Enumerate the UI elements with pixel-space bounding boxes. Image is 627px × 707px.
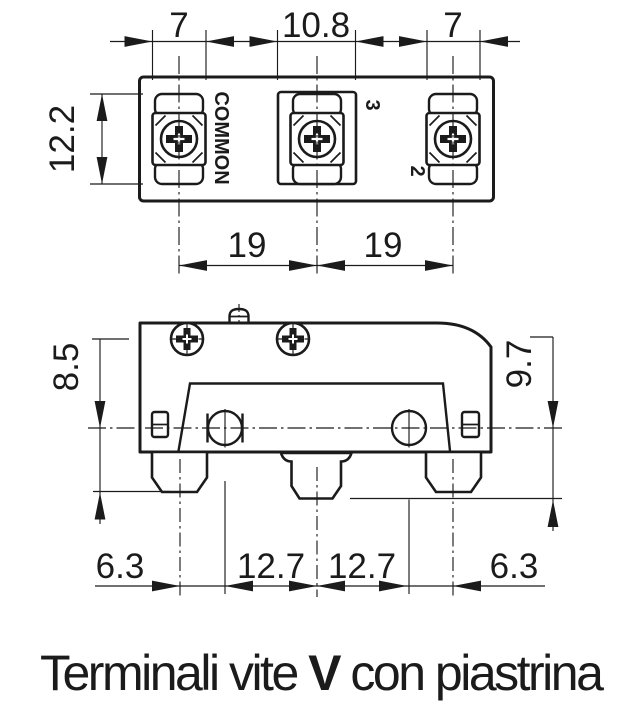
dimension-bottom-chain: 6.3 12.7 12.7 6.3: [95, 547, 545, 591]
extension-line: [90, 94, 143, 184]
cover-screw-right: [277, 323, 309, 355]
label-terminal-3: 3: [361, 99, 383, 110]
dim-label-off-l: 6.3: [96, 547, 145, 586]
dim-label-off-r: 6.3: [490, 547, 539, 586]
dim-label-height: 12.2: [43, 105, 82, 173]
dim-label-pitch-r: 19: [364, 226, 403, 265]
dim-label-h-left: 8.5: [47, 343, 86, 392]
dimension-top-widths: 7 10.8 7: [110, 6, 520, 80]
dim-label-p-l: 12.7: [237, 547, 305, 586]
technical-drawing: COMMON 3 2 7 10.8 7 12.2 19 19: [0, 0, 627, 707]
dim-label-w-right: 7: [443, 6, 462, 45]
label-terminal-2: 2: [406, 165, 428, 176]
lug-middle: [281, 453, 352, 499]
caption-text-2: con piastrina: [339, 645, 601, 701]
caption: Terminali vite V con piastrina: [40, 644, 627, 702]
caption-text-1: Terminali vite: [40, 645, 308, 701]
side-ear-right: [462, 412, 479, 437]
side-view: 8.5 9.7 6.3 12.7 12.7 6.3: [47, 304, 562, 597]
dimension-pitch: 19 19: [179, 226, 453, 271]
top-view: COMMON 3 2 7 10.8 7 12.2 19 19: [43, 6, 520, 276]
dim-label-h-right: 9.7: [500, 340, 539, 389]
dim-label-pitch-l: 19: [228, 226, 267, 265]
label-common: COMMON: [210, 91, 232, 184]
caption-bold-v: V: [308, 645, 339, 701]
side-ear-left: [152, 412, 168, 437]
dimension-terminal-height: 12.2: [43, 94, 143, 184]
dim-label-p-r: 12.7: [328, 547, 396, 586]
cover-screw-left: [171, 323, 203, 355]
dim-label-w-left: 7: [169, 6, 188, 45]
dim-label-w-mid: 10.8: [282, 6, 350, 45]
centerline: [180, 459, 453, 597]
technical-drawing-page: COMMON 3 2 7 10.8 7 12.2 19 19: [0, 0, 627, 707]
